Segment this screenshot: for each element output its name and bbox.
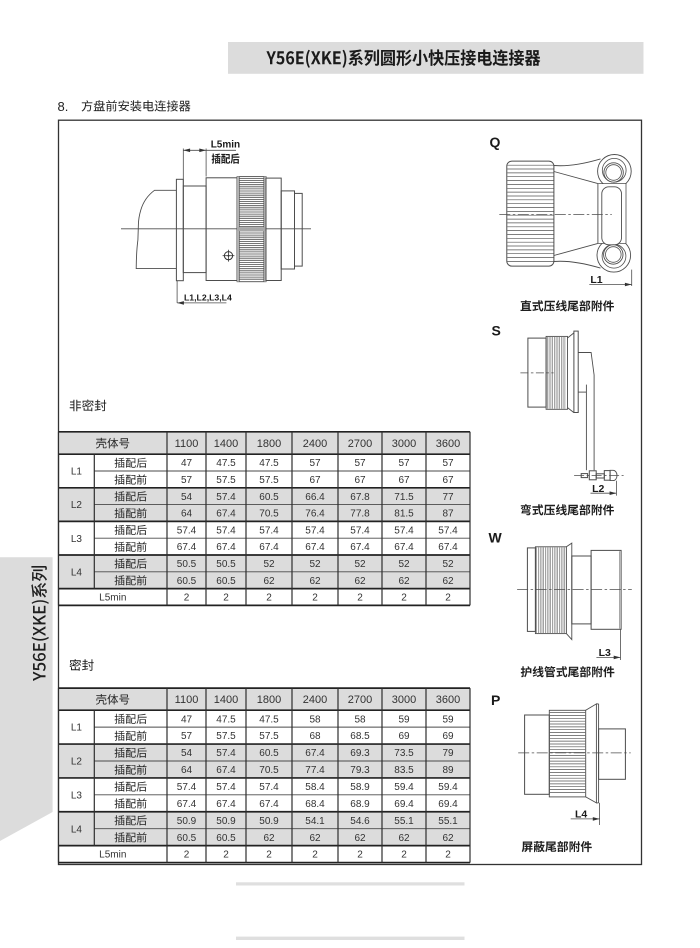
svg-text:79.3: 79.3: [350, 765, 370, 776]
svg-text:57.4: 57.4: [177, 525, 197, 536]
svg-text:47.5: 47.5: [216, 458, 236, 469]
svg-text:62: 62: [398, 576, 410, 587]
svg-text:67.4: 67.4: [216, 542, 236, 553]
svg-text:L4: L4: [71, 824, 83, 835]
svg-text:62: 62: [309, 833, 321, 844]
svg-text:2: 2: [445, 850, 451, 861]
svg-text:76.4: 76.4: [305, 509, 325, 520]
svg-text:1800: 1800: [257, 694, 281, 706]
svg-text:59: 59: [442, 714, 454, 725]
svg-text:64: 64: [181, 509, 193, 520]
svg-text:67.4: 67.4: [177, 542, 197, 553]
svg-text:68.4: 68.4: [305, 799, 325, 810]
svg-text:57.4: 57.4: [394, 525, 414, 536]
svg-text:50.5: 50.5: [216, 559, 236, 570]
svg-text:L3: L3: [71, 791, 83, 802]
svg-text:81.5: 81.5: [394, 509, 414, 520]
svg-text:73.5: 73.5: [394, 748, 414, 759]
svg-text:47.5: 47.5: [259, 714, 279, 725]
svg-text:67.4: 67.4: [259, 542, 279, 553]
svg-text:54.1: 54.1: [305, 816, 325, 827]
svg-text:L3: L3: [599, 647, 611, 659]
svg-text:1100: 1100: [175, 694, 199, 706]
svg-text:62: 62: [354, 833, 366, 844]
svg-text:2: 2: [312, 593, 318, 604]
svg-text:60.5: 60.5: [216, 833, 236, 844]
svg-text:2: 2: [184, 593, 190, 604]
svg-text:62: 62: [263, 576, 275, 587]
svg-text:57.4: 57.4: [216, 525, 236, 536]
svg-text:67: 67: [442, 475, 454, 486]
svg-text:58: 58: [354, 714, 366, 725]
svg-text:2: 2: [266, 850, 272, 861]
svg-text:62: 62: [263, 833, 275, 844]
svg-text:57.5: 57.5: [216, 731, 236, 742]
svg-text:57.4: 57.4: [305, 525, 325, 536]
svg-text:69: 69: [398, 731, 410, 742]
svg-text:70.5: 70.5: [259, 509, 279, 520]
svg-text:57: 57: [354, 458, 366, 469]
svg-text:62: 62: [442, 576, 454, 587]
svg-text:50.9: 50.9: [177, 816, 197, 827]
svg-text:69.4: 69.4: [394, 799, 414, 810]
svg-text:L1: L1: [71, 723, 83, 734]
svg-text:68: 68: [309, 731, 321, 742]
svg-text:2400: 2400: [303, 438, 327, 450]
svg-text:59: 59: [398, 714, 410, 725]
svg-text:77.8: 77.8: [350, 509, 370, 520]
svg-text:47.5: 47.5: [216, 714, 236, 725]
svg-text:67.4: 67.4: [216, 799, 236, 810]
svg-text:2700: 2700: [348, 694, 372, 706]
svg-text:67.4: 67.4: [438, 542, 458, 553]
svg-text:67.4: 67.4: [305, 748, 325, 759]
svg-text:1400: 1400: [214, 438, 238, 450]
svg-text:L4: L4: [71, 567, 83, 578]
svg-text:52: 52: [398, 559, 410, 570]
svg-text:1400: 1400: [214, 694, 238, 706]
svg-text:50.9: 50.9: [216, 816, 236, 827]
svg-text:L1,L2,L3,L4: L1,L2,L3,L4: [184, 292, 232, 302]
svg-text:58: 58: [309, 714, 321, 725]
svg-text:62: 62: [398, 833, 410, 844]
svg-text:57: 57: [309, 458, 321, 469]
svg-text:67: 67: [354, 475, 366, 486]
svg-text:P: P: [491, 692, 500, 708]
svg-text:59.4: 59.4: [438, 782, 458, 793]
svg-text:2: 2: [445, 593, 451, 604]
svg-text:69.3: 69.3: [350, 748, 370, 759]
svg-text:67.4: 67.4: [177, 799, 197, 810]
svg-text:Q: Q: [490, 134, 501, 150]
svg-text:3000: 3000: [392, 694, 416, 706]
svg-text:67.4: 67.4: [216, 509, 236, 520]
svg-text:62: 62: [354, 576, 366, 587]
svg-text:2: 2: [401, 593, 407, 604]
svg-text:55.1: 55.1: [438, 816, 458, 827]
svg-text:1100: 1100: [175, 438, 199, 450]
svg-text:68.5: 68.5: [350, 731, 370, 742]
svg-text:67.4: 67.4: [259, 799, 279, 810]
svg-text:57.4: 57.4: [177, 782, 197, 793]
svg-text:57.5: 57.5: [259, 731, 279, 742]
svg-text:2400: 2400: [303, 694, 327, 706]
svg-text:47.5: 47.5: [259, 458, 279, 469]
svg-text:57.4: 57.4: [216, 748, 236, 759]
svg-text:64: 64: [181, 765, 193, 776]
svg-text:L1: L1: [590, 274, 602, 286]
svg-text:83.5: 83.5: [394, 765, 414, 776]
svg-text:L5min: L5min: [211, 140, 240, 151]
svg-text:S: S: [492, 323, 501, 339]
svg-text:59.4: 59.4: [394, 782, 414, 793]
svg-text:52: 52: [442, 559, 454, 570]
svg-text:57.5: 57.5: [216, 475, 236, 486]
svg-text:60.5: 60.5: [177, 576, 197, 587]
svg-text:L1: L1: [71, 467, 83, 478]
svg-text:52: 52: [263, 559, 275, 570]
svg-text:62: 62: [442, 833, 454, 844]
svg-text:47: 47: [181, 458, 193, 469]
svg-text:L3: L3: [71, 534, 83, 545]
svg-text:60.5: 60.5: [259, 748, 279, 759]
svg-text:L2: L2: [71, 500, 83, 511]
svg-text:57: 57: [181, 475, 193, 486]
svg-text:2700: 2700: [348, 438, 372, 450]
svg-text:77.4: 77.4: [305, 765, 325, 776]
svg-text:67.4: 67.4: [305, 542, 325, 553]
svg-text:50.9: 50.9: [259, 816, 279, 827]
svg-text:57.5: 57.5: [259, 475, 279, 486]
svg-text:L2: L2: [592, 483, 604, 495]
svg-text:79: 79: [442, 748, 454, 759]
svg-text:57.4: 57.4: [438, 525, 458, 536]
svg-text:60.5: 60.5: [177, 833, 197, 844]
svg-text:L5min: L5min: [99, 850, 126, 861]
svg-text:60.5: 60.5: [259, 492, 279, 503]
svg-text:57: 57: [181, 731, 193, 742]
svg-text:67.4: 67.4: [394, 542, 414, 553]
svg-text:54: 54: [181, 492, 193, 503]
svg-text:58.4: 58.4: [305, 782, 325, 793]
svg-text:2: 2: [223, 850, 229, 861]
svg-text:2: 2: [401, 850, 407, 861]
svg-text:77: 77: [442, 492, 454, 503]
svg-text:2: 2: [266, 593, 272, 604]
svg-text:57.4: 57.4: [259, 782, 279, 793]
svg-text:60.5: 60.5: [216, 576, 236, 587]
svg-text:57.4: 57.4: [216, 492, 236, 503]
svg-text:71.5: 71.5: [394, 492, 414, 503]
svg-text:W: W: [489, 530, 503, 546]
svg-text:3600: 3600: [436, 694, 460, 706]
svg-text:89: 89: [442, 765, 454, 776]
svg-text:2: 2: [357, 593, 363, 604]
svg-text:62: 62: [309, 576, 321, 587]
svg-text:70.5: 70.5: [259, 765, 279, 776]
svg-text:8.: 8.: [58, 99, 69, 114]
svg-text:67: 67: [398, 475, 410, 486]
svg-text:52: 52: [354, 559, 366, 570]
svg-text:2: 2: [312, 850, 318, 861]
svg-text:57.4: 57.4: [259, 525, 279, 536]
svg-text:50.5: 50.5: [177, 559, 197, 570]
svg-text:67.4: 67.4: [216, 765, 236, 776]
svg-text:67.8: 67.8: [350, 492, 370, 503]
svg-text:3000: 3000: [392, 438, 416, 450]
svg-text:54.6: 54.6: [350, 816, 370, 827]
svg-text:52: 52: [309, 559, 321, 570]
svg-text:1800: 1800: [257, 438, 281, 450]
svg-text:L4: L4: [575, 808, 587, 820]
svg-text:2: 2: [184, 850, 190, 861]
svg-text:55.1: 55.1: [394, 816, 414, 827]
svg-text:47: 47: [181, 714, 193, 725]
svg-text:67: 67: [309, 475, 321, 486]
svg-text:69: 69: [442, 731, 454, 742]
svg-text:87: 87: [442, 509, 454, 520]
svg-text:66.4: 66.4: [305, 492, 325, 503]
svg-text:3600: 3600: [436, 438, 460, 450]
svg-text:2: 2: [223, 593, 229, 604]
svg-text:57.4: 57.4: [216, 782, 236, 793]
svg-text:2: 2: [357, 850, 363, 861]
svg-text:57.4: 57.4: [350, 525, 370, 536]
svg-text:57: 57: [442, 458, 454, 469]
svg-text:L5min: L5min: [99, 593, 126, 604]
svg-text:54: 54: [181, 748, 193, 759]
svg-text:57: 57: [398, 458, 410, 469]
svg-text:69.4: 69.4: [438, 799, 458, 810]
svg-text:67.4: 67.4: [350, 542, 370, 553]
svg-text:68.9: 68.9: [350, 799, 370, 810]
svg-text:58.9: 58.9: [350, 782, 370, 793]
svg-text:L2: L2: [71, 757, 83, 768]
